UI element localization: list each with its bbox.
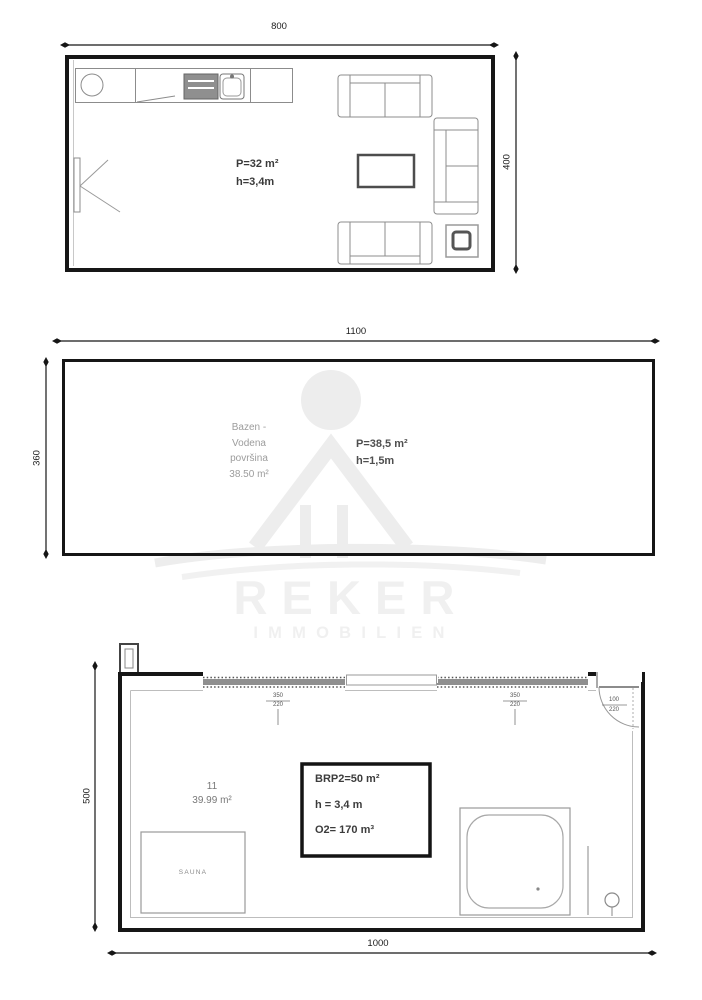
plan1-room: [67, 57, 493, 270]
plan3-height-dim-label: 500: [82, 788, 93, 804]
plan1-dim-width: [60, 42, 499, 47]
plan1-info: P=32 m² h=3,4m: [236, 155, 279, 191]
room-number: 11: [207, 781, 217, 792]
whirlpool-tub-icon: [460, 808, 570, 915]
plan1-height-dim-label: 400: [502, 154, 513, 170]
pool-depth-label: h=1,5m: [356, 453, 408, 470]
door-dim-top: 100: [609, 697, 619, 703]
plan2-dim-height: [43, 357, 48, 559]
info-box-line3: O2= 170 m³: [315, 824, 374, 836]
plan1-dim-height: [513, 51, 518, 274]
plan3-room: [120, 644, 643, 930]
logo-sun-icon: [301, 370, 361, 430]
cooktop-icon: [184, 74, 218, 99]
window1-dim-top: 350: [273, 693, 283, 699]
info-box-line2: h = 3,4 m: [315, 799, 362, 811]
plan2-width-dim-label: 1100: [346, 326, 366, 337]
window1-dim-bottom: 220: [273, 702, 283, 708]
floorplan-sheet: REKER IMMOBILIEN 800 400 P=32 m² h=3,4m …: [0, 0, 702, 1000]
floorplan-drawing: [0, 0, 702, 1000]
room-area: 39.99 m²: [192, 795, 231, 806]
chimney: [120, 644, 138, 673]
pool-area-label: P=38,5 m²: [356, 436, 408, 453]
pool-label-line: 38.50 m²: [229, 467, 268, 483]
watermark-logo: [155, 370, 546, 577]
plan3-width-dim-label: 1000: [367, 938, 388, 949]
plan1-width-dim-label: 800: [271, 21, 287, 32]
sauna-label: SAUNA: [179, 869, 207, 876]
info-box-line1: BRP2=50 m²: [315, 773, 380, 785]
plan3-dim-height: [92, 661, 97, 932]
pool-info: P=38,5 m² h=1,5m: [356, 436, 408, 470]
wall-pier: [345, 670, 438, 685]
plan2-dim-width: [52, 338, 660, 343]
plan1-area-label: P=32 m²: [236, 155, 279, 173]
plan3-dim-width: [107, 950, 657, 955]
plan2-height-dim-label: 360: [32, 450, 43, 466]
coffee-table: [358, 155, 414, 187]
plan1-ceiling-label: h=3,4m: [236, 173, 279, 191]
pool-label-line: Vodena: [229, 436, 268, 452]
watermark-subtitle: IMMOBILIEN: [253, 624, 454, 643]
door-dim-bottom: 220: [609, 707, 619, 713]
pool-label-line: površina: [229, 451, 268, 467]
kitchen-sink-icon: [220, 74, 244, 99]
pool-label-line: Bazen -: [229, 420, 268, 436]
window2-dim-bottom: 220: [510, 702, 520, 708]
door-opening: [596, 670, 642, 682]
watermark-name: REKER: [233, 570, 468, 625]
window2-dim-top: 350: [510, 693, 520, 699]
pool-surface-label: Bazen - Vodena površina 38.50 m²: [229, 420, 268, 482]
